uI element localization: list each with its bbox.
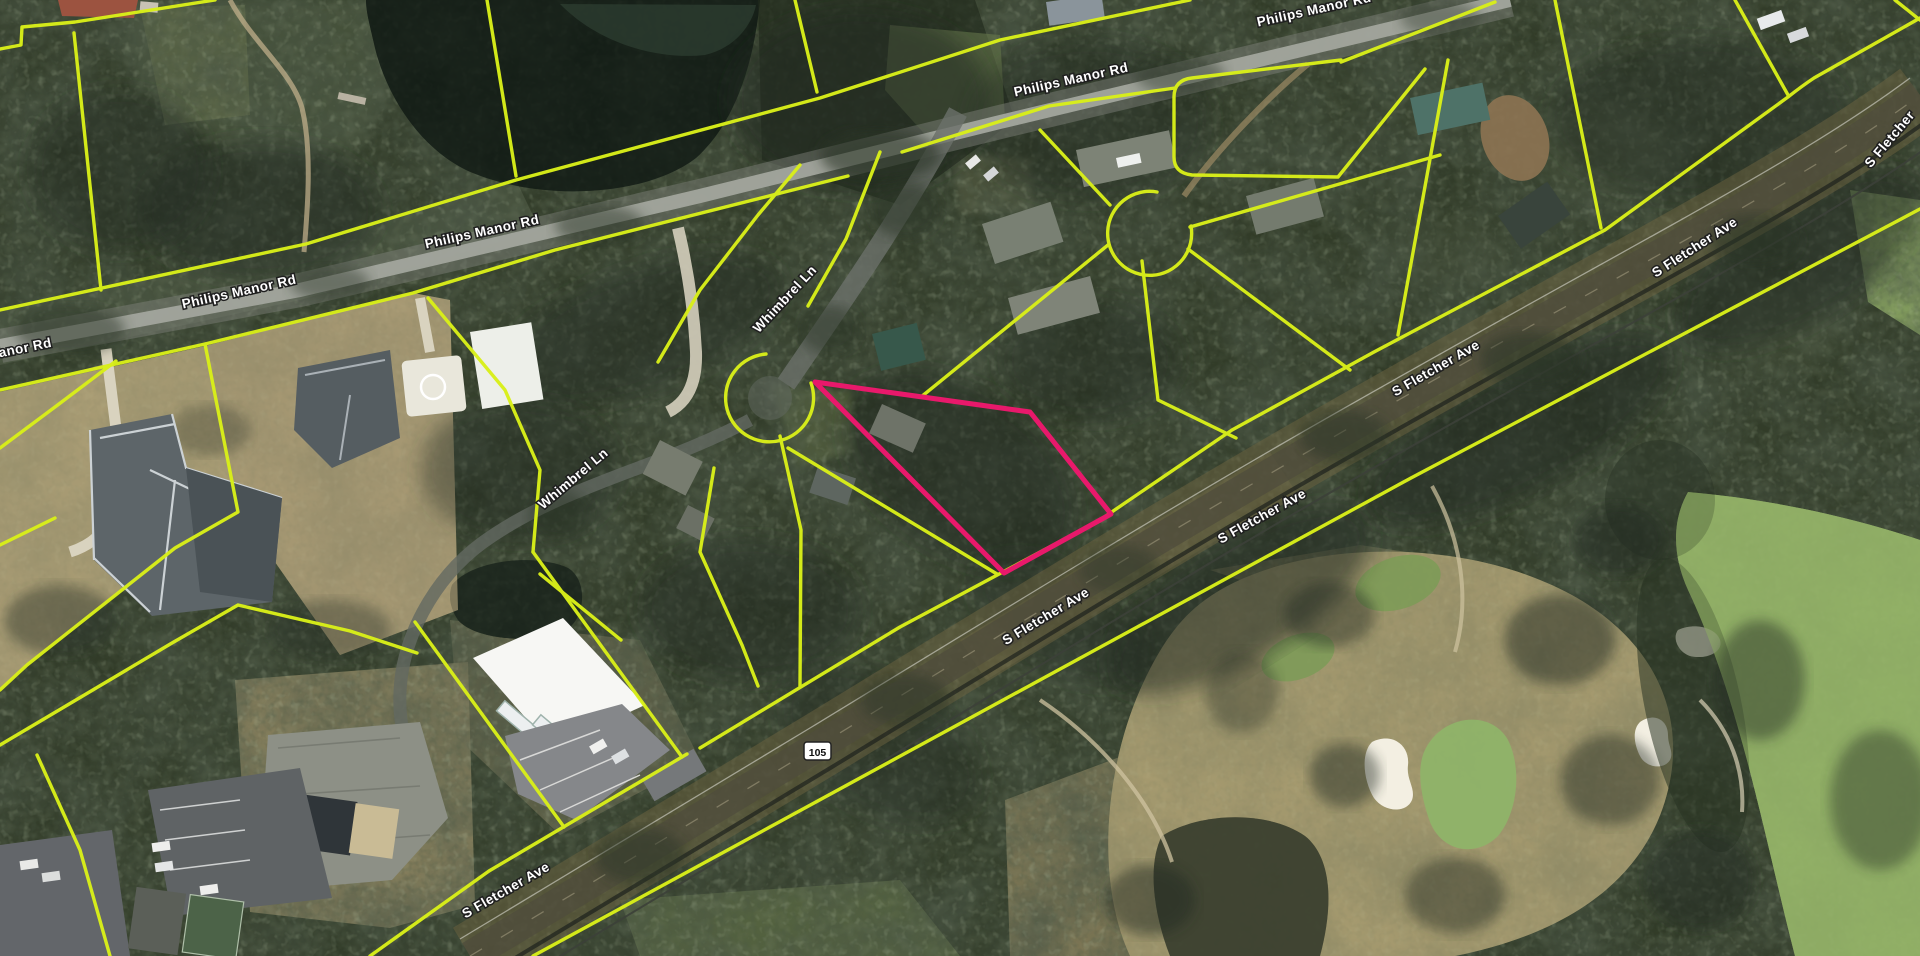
svg-text:105: 105 [809,747,827,759]
